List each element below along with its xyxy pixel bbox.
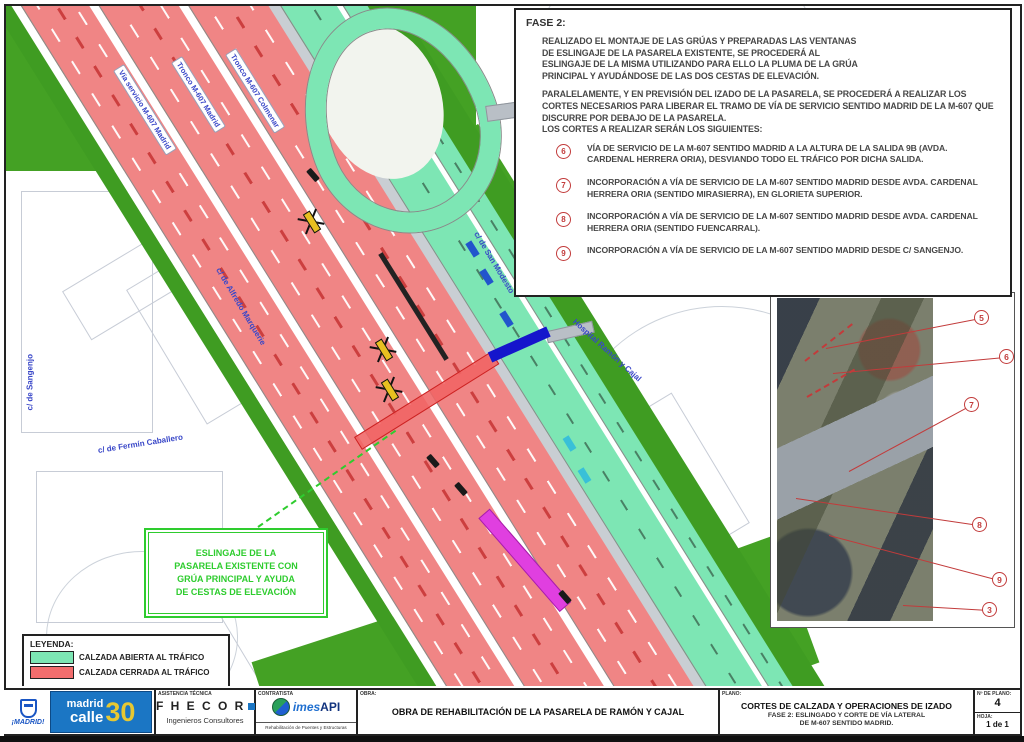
crane-icon xyxy=(366,332,400,366)
plano-header: PLANO: xyxy=(722,691,741,697)
route-dashed-line xyxy=(804,323,853,362)
calle30-word-calle: calle xyxy=(67,710,104,725)
phase2-item: 6 VÍA DE SERVICIO DE LA M-607 SENTIDO MA… xyxy=(556,143,1000,166)
title-block: ¡MADRID! madrid calle 30 ASISTENCIA TÉCN… xyxy=(4,688,1020,734)
plano-title-line1: CORTES DE CALZADA Y OPERACIONES DE IZADO xyxy=(741,701,952,711)
item-text: INCORPORACIÓN A VÍA DE SERVICIO DE LA M-… xyxy=(587,245,963,257)
legend-row-closed: CALZADA CERRADA AL TRÁFICO xyxy=(30,666,222,679)
imesapi-logo-imes: imes xyxy=(293,700,320,714)
aerial-photo-inset: 5 6 7 8 9 3 xyxy=(770,292,1015,628)
inset-callout-3: 3 xyxy=(982,602,997,617)
street-label-sangenjo: c/ de Sangenjo xyxy=(26,354,35,410)
street-label-fermin: c/ de Fermín Caballero xyxy=(97,433,183,455)
legend-swatch-closed xyxy=(30,666,74,679)
inset-callout-5: 5 xyxy=(974,310,989,325)
phase2-item: 8 INCORPORACIÓN A VÍA DE SERVICIO DE LA … xyxy=(556,211,1000,234)
asistencia-cell: ASISTENCIA TÉCNICA F H E C O R Ingeniero… xyxy=(156,690,256,734)
inset-callout-6: 6 xyxy=(999,349,1014,364)
sheet-count-header: HOJA: xyxy=(977,714,993,720)
plano-title-line2: FASE 2: ESLINGADO Y CORTE DE VÍA LATERAL xyxy=(768,712,925,719)
sheet-number-cell: Nº DE PLANO: 4 HOJA: 1 de 1 xyxy=(975,690,1020,734)
legend-box: LEYENDA: CALZADA ABIERTA AL TRÁFICO CALZ… xyxy=(22,634,230,686)
imesapi-emblem-icon xyxy=(272,698,290,716)
obra-cell: OBRA: OBRA DE REHABILITACIÓN DE LA PASAR… xyxy=(358,690,720,734)
phase2-item: 9 INCORPORACIÓN A VÍA DE SERVICIO DE LA … xyxy=(556,245,1000,261)
item-number-badge: 6 xyxy=(556,144,571,159)
item-text: INCORPORACIÓN A VÍA DE SERVICIO DE LA M-… xyxy=(587,177,978,200)
inset-callout-7: 7 xyxy=(964,397,979,412)
aerial-photo xyxy=(777,298,933,621)
plan-number-value: 4 xyxy=(975,697,1020,709)
phase2-title: FASE 2: xyxy=(526,17,1000,29)
item-text: INCORPORACIÓN A VÍA DE SERVICIO DE LA M-… xyxy=(587,211,978,234)
phase2-notes-box: FASE 2: REALIZADO EL MONTAJE DE LAS GRÚA… xyxy=(514,8,1012,297)
crane-icon xyxy=(372,372,406,406)
madrid-shield-icon xyxy=(20,699,37,718)
contratista-header: CONTRATISTA xyxy=(258,691,293,697)
fhecor-logo: F H E C O R xyxy=(156,699,254,713)
asistencia-header: ASISTENCIA TÉCNICA xyxy=(158,691,212,697)
legend-label-closed: CALZADA CERRADA AL TRÁFICO xyxy=(79,668,210,677)
imesapi-logo-api: API xyxy=(320,700,340,714)
fhecor-square-icon xyxy=(248,703,255,710)
item-number-badge: 9 xyxy=(556,246,571,261)
obra-title: OBRA DE REHABILITACIÓN DE LA PASARELA DE… xyxy=(392,707,684,717)
sling-callout-text: ESLINGAJE DE LA PASARELA EXISTENTE CON G… xyxy=(148,532,324,614)
plan-number-header: Nº DE PLANO: xyxy=(977,691,1011,697)
madrid-calle30-logo: madrid calle 30 xyxy=(50,691,152,733)
madrid-logo-text: ¡MADRID! xyxy=(6,719,50,726)
legend-title: LEYENDA: xyxy=(30,639,222,649)
sheet-count-box: HOJA: 1 de 1 xyxy=(975,712,1020,735)
calle30-number: 30 xyxy=(105,699,135,726)
sheet-count-value: 1 de 1 xyxy=(975,720,1020,729)
contratista-cell: CONTRATISTA imes API Rehabilitación de P… xyxy=(256,690,358,734)
bottom-black-bar xyxy=(0,736,1024,742)
item-text: VÍA DE SERVICIO DE LA M-607 SENTIDO MADR… xyxy=(587,143,947,166)
route-dashed-line xyxy=(807,369,856,398)
plan-sheet: c/ de Sangenjo c/ de Fermín Caballero c/… xyxy=(0,0,1024,742)
plano-cell: PLANO: CORTES DE CALZADA Y OPERACIONES D… xyxy=(720,690,975,734)
inset-callout-9: 9 xyxy=(992,572,1007,587)
imesapi-subtitle: Rehabilitación de Puentes y Estructuras xyxy=(256,722,356,730)
legend-row-open: CALZADA ABIERTA AL TRÁFICO xyxy=(30,651,222,664)
inset-callout-8: 8 xyxy=(972,517,987,532)
fhecor-subtitle: Ingenieros Consultores xyxy=(156,716,254,725)
legend-swatch-open xyxy=(30,651,74,664)
phase2-paragraph-1: REALIZADO EL MONTAJE DE LAS GRÚAS Y PREP… xyxy=(542,36,1000,82)
madrid-city-logo: ¡MADRID! xyxy=(6,699,50,726)
legend-label-open: CALZADA ABIERTA AL TRÁFICO xyxy=(79,653,204,662)
item-number-badge: 8 xyxy=(556,212,571,227)
item-number-badge: 7 xyxy=(556,178,571,193)
phase2-paragraph-2: PARALELAMENTE, Y EN PREVISIÓN DEL IZADO … xyxy=(542,89,1000,135)
crane-icon xyxy=(294,204,328,238)
plan-number-box: Nº DE PLANO: 4 xyxy=(975,690,1020,712)
sling-callout-box: ESLINGAJE DE LA PASARELA EXISTENTE CON G… xyxy=(144,528,328,618)
phase2-item: 7 INCORPORACIÓN A VÍA DE SERVICIO DE LA … xyxy=(556,177,1000,200)
logos-cell: ¡MADRID! madrid calle 30 xyxy=(4,690,156,734)
plano-title-line3: DE M-607 SENTIDO MADRID. xyxy=(800,720,894,727)
obra-header: OBRA: xyxy=(360,691,376,697)
